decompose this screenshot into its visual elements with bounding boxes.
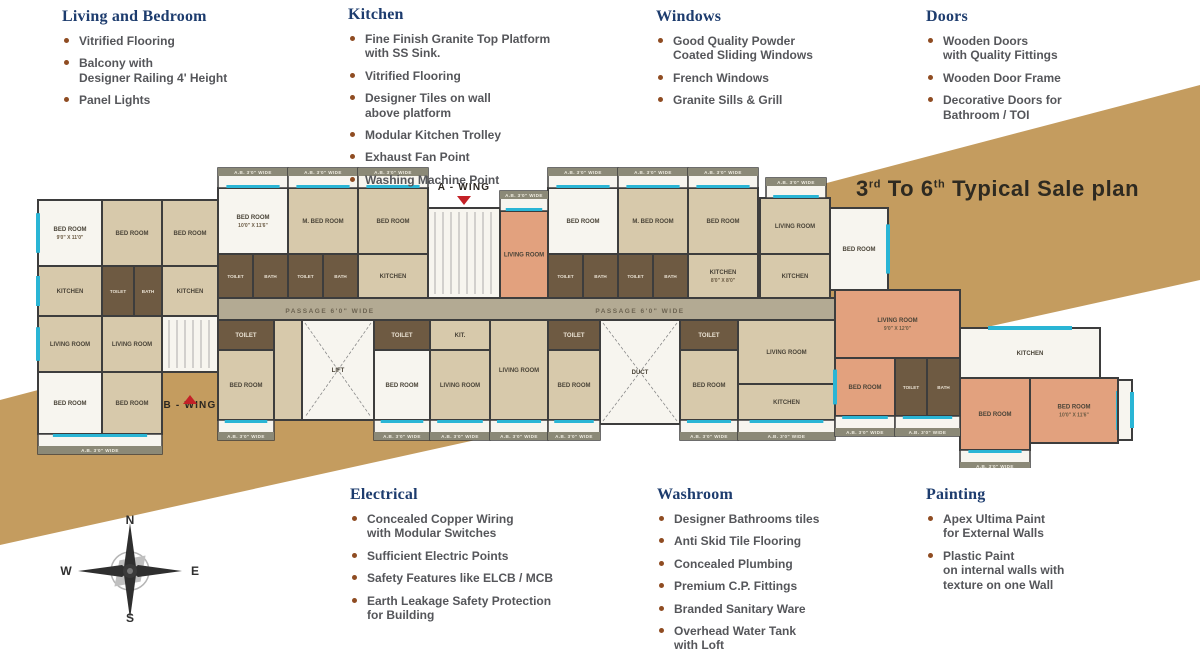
features-panel-windows: WindowsGood Quality Powder Coated Slidin…: [656, 8, 881, 116]
room-label: BED ROOM: [558, 383, 591, 389]
room-label: KIT.: [455, 333, 466, 339]
room-label: BATH: [594, 274, 607, 279]
feature-item: Panel Lights: [62, 93, 307, 107]
room: [428, 208, 500, 298]
features-panel-doors: DoorsWooden Doors with Quality FittingsW…: [926, 8, 1161, 130]
feature-item: Premium C.P. Fittings: [657, 579, 882, 593]
compass-label-south: S: [126, 611, 134, 623]
compass-label-east: E: [191, 564, 199, 578]
room: [38, 200, 102, 266]
feature-item: Modular Kitchen Trolley: [348, 128, 593, 142]
feature-item: Apex Ultima Paint for External Walls: [926, 512, 1161, 541]
room-label: BED ROOM: [843, 247, 876, 253]
feature-item: Exhaust Fan Point: [348, 150, 593, 164]
room: [835, 290, 960, 358]
feature-item: Designer Bathrooms tiles: [657, 512, 882, 526]
room-label: M. BED ROOM: [632, 219, 673, 225]
feature-item: Balcony with Designer Railing 4' Height: [62, 56, 307, 85]
room-label: KITCHEN: [782, 274, 809, 280]
balcony-window: [554, 420, 594, 423]
room-label: BED ROOM: [1058, 405, 1091, 411]
compass-west-point: [78, 565, 130, 577]
feature-item: Wooden Door Frame: [926, 71, 1161, 85]
feature-item: Anti Skid Tile Flooring: [657, 534, 882, 548]
room-label: BED ROOM: [693, 383, 726, 389]
balcony-window: [225, 420, 268, 423]
balcony-label: A.B. 3'0" WIDE: [846, 430, 884, 435]
feature-item: Safety Features like ELCB / MCB: [350, 571, 605, 585]
room-label: BED ROOM: [567, 219, 600, 225]
feature-item: Concealed Copper Wiring with Modular Swi…: [350, 512, 605, 541]
panel-title-kitchen: Kitchen: [348, 6, 593, 24]
balcony-label: A.B. 3'0" WIDE: [234, 170, 272, 175]
room-label: M. BED ROOM: [302, 219, 343, 225]
room-label: BATH: [142, 289, 155, 294]
feature-item: Wooden Doors with Quality Fittings: [926, 34, 1161, 63]
passage-label: PASSAGE 6'0" WIDE: [595, 308, 684, 315]
room-label: BED ROOM: [230, 383, 263, 389]
room-label: BED ROOM: [54, 227, 87, 233]
room-label: TOILET: [627, 274, 643, 279]
room-label: TOILET: [563, 333, 585, 339]
room-label: LIVING ROOM: [775, 224, 815, 230]
balcony-window: [968, 450, 1021, 453]
window-glazing: [988, 326, 1072, 330]
room: [688, 254, 758, 298]
room-label: TOILET: [391, 333, 413, 339]
balcony-label: A.B. 3'0" WIDE: [304, 170, 342, 175]
room-label: LIVING ROOM: [440, 383, 480, 389]
room-label: TOILET: [903, 385, 919, 390]
feature-item: Earth Leakage Safety Protection for Buil…: [350, 594, 605, 623]
room-dimension: 9'0" X 11'0": [57, 235, 84, 241]
compass-hub-center: [127, 568, 133, 574]
room: [274, 320, 302, 420]
room-label: BED ROOM: [979, 412, 1012, 418]
balcony-window: [626, 185, 679, 188]
compass-east-point: [130, 565, 182, 577]
features-panel-kitchen: KitchenFine Finish Granite Top Platform …: [348, 6, 593, 195]
room-label: LIVING ROOM: [112, 342, 152, 348]
feature-item: Sufficient Electric Points: [350, 549, 605, 563]
balcony-label: A.B. 3'0" WIDE: [441, 434, 479, 439]
balcony-label: A.B. 3'0" WIDE: [768, 434, 806, 439]
features-panel-living: Living and BedroomVitrified FlooringBalc…: [62, 8, 307, 116]
window-glazing: [36, 213, 40, 253]
window-glazing: [886, 224, 890, 273]
feature-item: Fine Finish Granite Top Platform with SS…: [348, 32, 593, 61]
room-label: BED ROOM: [707, 219, 740, 225]
room-label: LIVING ROOM: [877, 318, 917, 324]
room-label: KITCHEN: [177, 289, 204, 295]
feature-item: Good Quality Powder Coated Sliding Windo…: [656, 34, 881, 63]
panel-title-living: Living and Bedroom: [62, 8, 307, 26]
room-label: BED ROOM: [54, 401, 87, 407]
balcony-label: A.B. 3'0" WIDE: [555, 434, 593, 439]
feature-item: Decorative Doors for Bathroom / TOI: [926, 93, 1161, 122]
balcony-window: [381, 420, 424, 423]
feature-item: Concealed Plumbing: [657, 557, 882, 571]
panel-title-electrical: Electrical: [350, 486, 605, 504]
room-label: KITCHEN: [773, 400, 800, 406]
building-floor-plan: PASSAGE 6'0" WIDEPASSAGE 6'0" WIDEBED RO…: [30, 148, 1135, 468]
room-label: LIVING ROOM: [766, 350, 806, 356]
balcony-label: A.B. 3'0" WIDE: [777, 180, 815, 185]
compass-label-north: N: [126, 515, 135, 527]
room-label: TOILET: [557, 274, 573, 279]
room-label: LIFT: [332, 368, 345, 374]
room-label: BATH: [334, 274, 347, 279]
compass-label-west: W: [60, 564, 72, 578]
room-label: BATH: [937, 385, 950, 390]
room-label: BED ROOM: [116, 231, 149, 237]
balcony-label: A.B. 3'0" WIDE: [500, 434, 538, 439]
balcony-label: A.B. 3'0" WIDE: [976, 464, 1014, 468]
room-dimension: 10'0" X 11'6": [238, 223, 268, 229]
balcony-window: [437, 420, 483, 423]
room: [218, 188, 288, 254]
feature-item: Branded Sanitary Ware: [657, 602, 882, 616]
wing-arrow: [457, 196, 471, 205]
window-glazing: [36, 327, 40, 361]
balcony-window: [842, 416, 888, 419]
room-label: KITCHEN: [1017, 351, 1044, 357]
balcony-label: A.B. 3'0" WIDE: [704, 170, 742, 175]
room: [1030, 378, 1118, 443]
feature-item: French Windows: [656, 71, 881, 85]
panel-title-windows: Windows: [656, 8, 881, 26]
balcony-window: [687, 420, 731, 423]
room-dimension: 10'0" X 11'6": [1059, 413, 1089, 419]
feature-item: Washing Machine Point: [348, 173, 593, 187]
passage-label: PASSAGE 6'0" WIDE: [285, 308, 374, 315]
room: [1118, 380, 1132, 440]
features-panel-electrical: ElectricalConcealed Copper Wiring with M…: [350, 486, 605, 630]
balcony-window: [903, 416, 952, 419]
room-label: BED ROOM: [377, 219, 410, 225]
room-label: TOILET: [235, 333, 257, 339]
balcony-window: [506, 208, 542, 211]
panel-title-washroom: Washroom: [657, 486, 882, 504]
room-dimension: 9'0" X 12'0": [884, 326, 912, 332]
balcony-window: [53, 434, 147, 437]
feature-item: Overhead Water Tank with Loft: [657, 624, 882, 653]
feature-item: Designer Tiles on wall above platform: [348, 91, 593, 120]
window-glazing: [36, 276, 40, 306]
room-label: BED ROOM: [174, 231, 207, 237]
balcony-window: [773, 195, 819, 198]
room-label: LIVING ROOM: [504, 253, 544, 259]
room-label: KITCHEN: [57, 289, 84, 295]
balcony-label: A.B. 3'0" WIDE: [690, 434, 728, 439]
balcony-label: A.B. 3'0" WIDE: [81, 448, 119, 453]
balcony-window: [497, 420, 541, 423]
room-label: BATH: [264, 274, 277, 279]
room-label: DUCT: [632, 370, 649, 376]
panel-title-doors: Doors: [926, 8, 1161, 26]
room-label: LIVING ROOM: [50, 342, 90, 348]
balcony-label: A.B. 3'0" WIDE: [909, 430, 947, 435]
room-label: TOILET: [110, 289, 126, 294]
room-label: KITCHEN: [710, 270, 737, 276]
room-label: TOILET: [698, 333, 720, 339]
room-dimension: 8'0" X 8'0": [711, 278, 736, 284]
balcony-label: A.B. 3'0" WIDE: [634, 170, 672, 175]
balcony-window: [296, 185, 349, 188]
room-label: LIVING ROOM: [499, 368, 539, 374]
feature-item: Granite Sills & Grill: [656, 93, 881, 107]
balcony-window: [750, 420, 824, 423]
room-label: KITCHEN: [380, 274, 407, 280]
window-glazing: [833, 370, 837, 405]
balcony-window: [696, 185, 749, 188]
features-panel-washroom: WashroomDesigner Bathrooms tilesAnti Ski…: [657, 486, 882, 661]
room-label: TOILET: [297, 274, 313, 279]
balcony-label: A.B. 3'0" WIDE: [383, 434, 421, 439]
room-label: BED ROOM: [386, 383, 419, 389]
room-label: BATH: [664, 274, 677, 279]
room-label: BED ROOM: [237, 215, 270, 221]
feature-item: Vitrified Flooring: [62, 34, 307, 48]
features-panel-painting: PaintingApex Ultima Paint for External W…: [926, 486, 1161, 600]
balcony-label: A.B. 3'0" WIDE: [227, 434, 265, 439]
room-label: BED ROOM: [116, 401, 149, 407]
room-label: TOILET: [227, 274, 243, 279]
window-glazing: [1130, 392, 1134, 428]
panel-title-painting: Painting: [926, 486, 1161, 504]
room-label: BED ROOM: [849, 385, 882, 391]
feature-item: Plastic Paint on internal walls with tex…: [926, 549, 1161, 592]
room: [162, 316, 218, 372]
feature-item: Vitrified Flooring: [348, 69, 593, 83]
compass-rose: N S W E: [56, 515, 206, 623]
balcony-window: [226, 185, 279, 188]
